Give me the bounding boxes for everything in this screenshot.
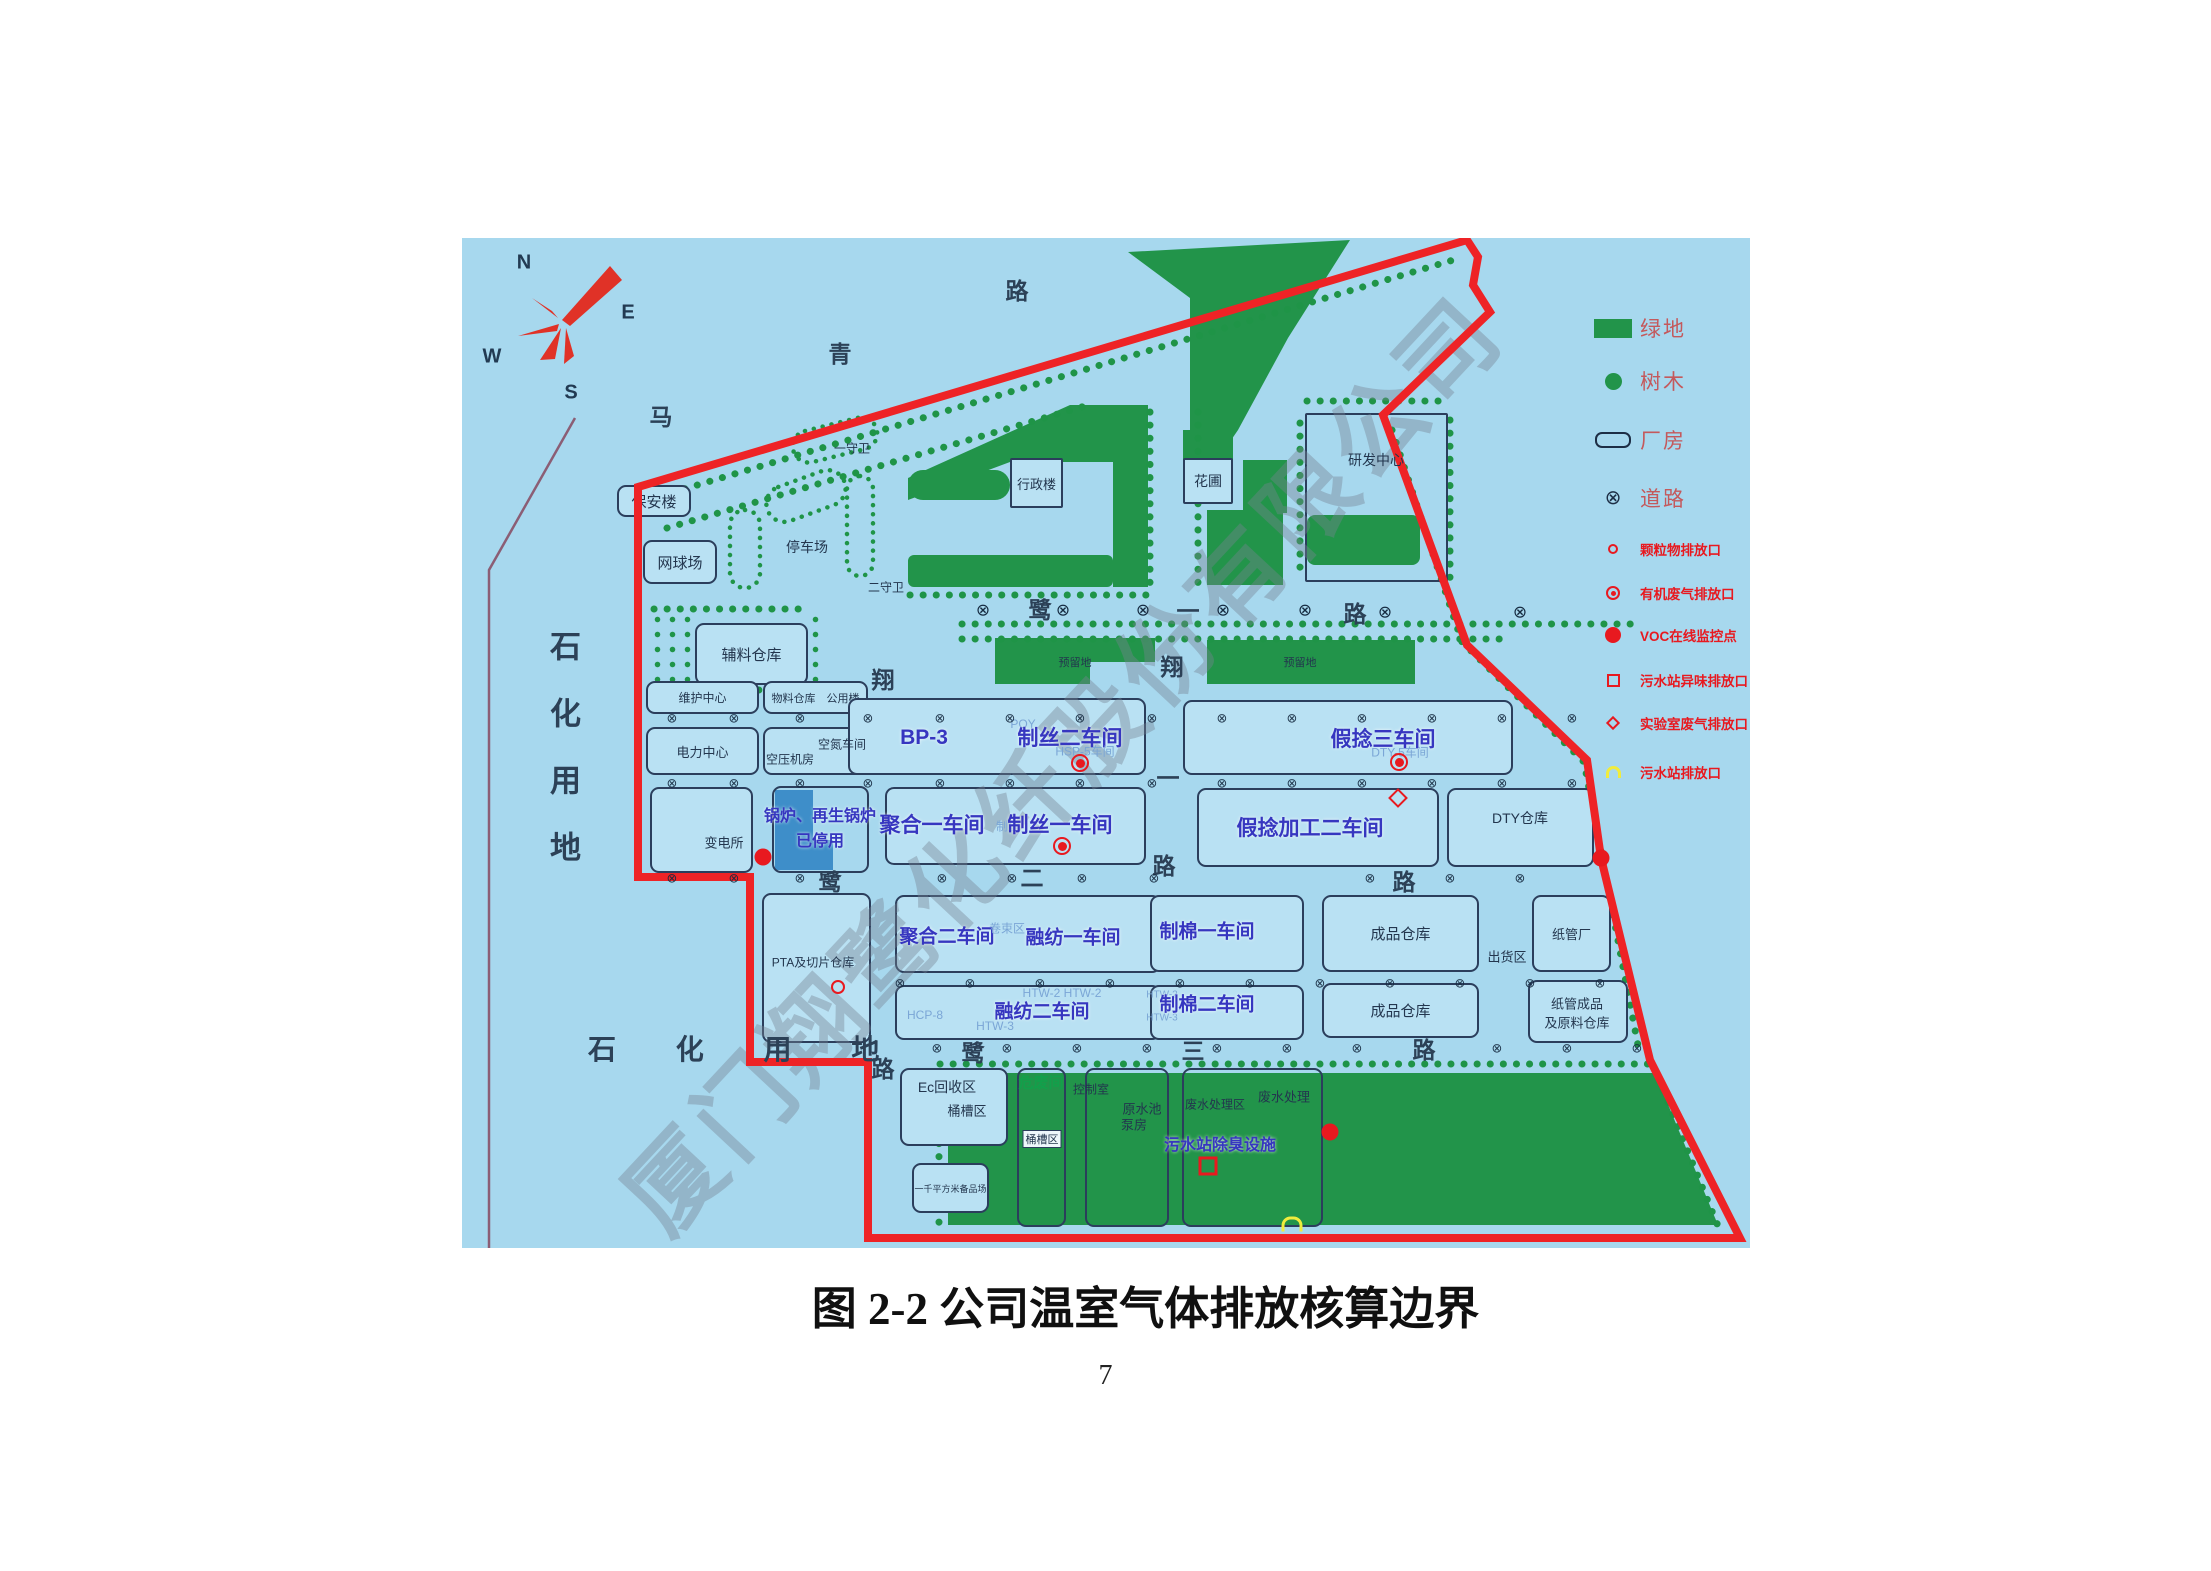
road-name-char: 一 [1157,759,1180,793]
road-node-icon: ⊗ [937,872,948,885]
road-node-icon: ⊗ [795,712,806,725]
road-name-char: 鹭 [1029,591,1052,625]
label-air-compressor: 空压机房 [766,751,814,768]
road-name-char: 翔 [1161,648,1184,682]
compass-rose-icon [518,266,622,364]
road-node-icon: ⊗ [1147,777,1158,790]
road-node-icon: ⊗ [863,712,874,725]
legend-item-green-area: 绿地 [1590,313,1750,343]
legend-item-sewage-outlet: 污水站排放口 [1590,757,1750,787]
label-bundle-area: 卷束区 [989,920,1025,937]
label-pta: PTA及切片仓库 [772,954,854,971]
site-map: 保安楼 网球场 辅料仓库 维护中心 物料仓库 公用楼 电力中心 成品仓库 纸管厂… [462,238,1750,1248]
road-node-icon: ⊗ [1315,977,1326,990]
road-crossing-icon: ⊗ [1378,604,1392,621]
road-node-icon: ⊗ [1357,712,1368,725]
legend-item-trees: 树木 [1590,366,1750,396]
label-hazwaste-room: 危废间 [1018,1072,1063,1093]
road-name-char: 一 [1177,592,1200,626]
organic-gas-outlet-icon [1071,754,1089,772]
road-node-icon: ⊗ [729,777,740,790]
figure-caption: 图 2-2 公司温室气体排放核算边界 [40,1272,2211,1337]
road-crossing-icon: ⊗ [1513,604,1527,621]
pm-outlet-icon [1608,544,1618,554]
label-pump-house: 泵房 [1121,1115,1147,1134]
label-deodorization: 污水站除臭设施 [1164,1131,1276,1155]
road-crossing-icon: ⊗ [1056,602,1070,619]
road-name-char: 路 [1393,863,1416,897]
road-name-char: 路 [1344,595,1367,629]
road-node-icon: ⊗ [1077,872,1088,885]
document-page: 保安楼 网球场 辅料仓库 维护中心 物料仓库 公用楼 电力中心 成品仓库 纸管厂… [0,0,2211,1571]
label-paper-tube-2: 及原料仓库 [1544,1013,1609,1032]
tree-dot-grid [650,612,694,688]
road-node-icon: ⊗ [1005,777,1016,790]
compass-s: S [564,382,577,405]
page-number: 7 [0,1360,2211,1392]
road-name-char: 青 [829,335,852,369]
road-node-icon: ⊗ [1515,872,1526,885]
road-name-char: 马 [650,398,673,432]
building-power-center: 电力中心 [646,727,759,775]
label-wastewater: 废水处理 [1258,1087,1310,1106]
road-node-icon: ⊗ [1217,712,1228,725]
road-node-icon: ⊗ [1287,777,1298,790]
road-node-icon: ⊗ [1075,712,1086,725]
sewage-odor-outlet-icon [1607,674,1620,687]
road-node-icon: ⊗ [895,977,906,990]
building-maintenance-center: 维护中心 [646,681,759,714]
green-area-swatch [1594,319,1632,338]
road-node-icon: ⊗ [935,712,946,725]
road-node-icon: ⊗ [863,777,874,790]
road-node-icon: ⊗ [667,712,678,725]
road-node-icon: ⊗ [1212,1042,1223,1055]
label-control-room: 控制室 [1073,1081,1109,1098]
petrochemical-land-label-horizontal: 石 化 用 地 [588,1028,905,1068]
legend-item-voc: VOC在线监控点 [1590,620,1750,650]
label-stopped-boiler-2: 已停用 [796,827,844,851]
road-node-icon: ⊗ [1072,1042,1083,1055]
label-hcp8: HCP-8 [907,1008,943,1022]
road-name-char: 二 [1021,859,1044,893]
building-finished-warehouse2: 成品仓库 [1322,983,1479,1038]
road-node-icon: ⊗ [965,977,976,990]
road-node-icon: ⊗ [1595,977,1606,990]
road-name-char: 路 [872,1050,895,1084]
label-meltspin1: 融纺一车间 [1025,923,1120,950]
label-reserved-land1: 预留地 [1059,654,1092,670]
compass-w: W [483,346,502,369]
label-wastewater-area: 废水处理区 [1185,1096,1245,1113]
label-meltspin2: 融纺二车间 [994,997,1089,1024]
road-node-icon: ⊗ [1567,777,1578,790]
road-node-icon: ⊗ [1455,977,1466,990]
road-name-char: 路 [1006,272,1029,306]
road-node-icon: ⊗ [1427,777,1438,790]
road-crossing-icon: ⊗ [1298,602,1312,619]
road-name-char: 鹭 [962,1034,985,1068]
road-node-icon: ⊗ [935,777,946,790]
road-crossing-icon: ⊗ [1216,602,1230,619]
building-tennis-court: 网球场 [643,540,717,584]
building-paper-tube-plant: 纸管厂 [1532,895,1611,972]
label-ec-recycle: Ec回收区 [918,1077,976,1097]
sewage-odor-outlet-icon [1199,1157,1218,1176]
organic-gas-outlet-icon [1606,586,1620,600]
road-node-icon: ⊗ [729,712,740,725]
legend-item-pm-outlet: 颗粒物排放口 [1590,534,1750,564]
voc-monitor-icon [1322,1124,1339,1141]
road-node-icon: ⊗ [1245,977,1256,990]
building-finished-warehouse1: 成品仓库 [1322,895,1479,972]
road-node-icon: ⊗ [1365,872,1376,885]
building-spare-parts-yard: 一千平方米备品场 [912,1163,989,1213]
label-staple1: 制棉一车间 [1159,917,1254,944]
road-node-icon: ⊗ [1287,712,1298,725]
road-node-icon: ⊗ [1632,1042,1643,1055]
road-node-icon: ⊗ [1142,1042,1153,1055]
road-node-icon: ⊗ [1007,872,1018,885]
building-substation [650,787,753,873]
legend-item-lab-gas: 实验室废气排放口 [1590,708,1750,738]
factory-building-icon [1595,432,1631,448]
road-node-icon: ⊗ [1357,777,1368,790]
road-node-icon: ⊗ [1427,712,1438,725]
voc-monitor-icon [755,849,772,866]
road-node-icon: ⊗ [1105,977,1116,990]
road-node-icon: ⊗ [795,872,806,885]
label-rnd-center: 研发中心 [1348,450,1404,470]
voc-monitor-icon [1605,627,1621,643]
label-shipping-area: 出货区 [1487,947,1526,966]
organic-gas-outlet-icon [1390,753,1408,771]
sewage-outlet-icon [1282,1217,1303,1232]
label-air-separation: 空氮车间 [818,736,866,753]
road-name-char: 鹭 [819,863,842,897]
label-guard1: 一守卫 [834,440,870,457]
tree-dot-grid [808,612,824,688]
road-name-char: 翔 [872,661,895,695]
sewage-outlet-icon [1606,766,1621,778]
building-aux-warehouse: 辅料仓库 [695,623,808,685]
legend-item-factory: 厂房 [1590,425,1750,455]
road-node-icon: ⊗ [932,1042,943,1055]
road-node-icon: ⊗ [1567,712,1578,725]
label-staple2: 制棉二车间 [1159,990,1254,1017]
label-reserved-land2: 预留地 [1284,654,1317,670]
building-security: 保安楼 [617,485,691,517]
road-node-icon: ⊗ [1525,977,1536,990]
road-node-icon: ⊗ [1385,977,1396,990]
road-node-icon: ⊗ [1497,712,1508,725]
label-bp3: BP-3 [900,726,948,750]
road-node-icon: ⊗ [1005,712,1016,725]
label-spinning1: 制丝一车间 [1008,809,1113,839]
legend-item-sewage-odor: 污水站异味排放口 [1590,665,1750,695]
road-node-icon: ⊗ [1147,712,1158,725]
road-crossing-icon: ⊗ [976,602,990,619]
road-node-icon: ⊗ [1445,872,1456,885]
label-dty-warehouse: DTY仓库 [1492,808,1548,828]
label-tank-area1: 桶槽区 [947,1101,986,1120]
road-name-char: 路 [1413,1031,1436,1065]
label-texturing-proc2: 假捻加工二车间 [1237,812,1384,842]
label-poly2: 聚合二车间 [899,922,994,949]
building-admin: 行政楼 [1010,458,1063,508]
label-stopped-boiler-1: 锅炉、再生锅炉 [764,802,876,826]
road-node-icon: ⊗ [1352,1042,1363,1055]
road-name-char: 三 [1182,1032,1205,1066]
road-node-icon: ⊗ [1282,1042,1293,1055]
road-node-icon: ⊗ [1562,1042,1573,1055]
petrochemical-land-label-vertical: 石化用地 [540,630,585,898]
road-node-icon: ⊗ [1035,977,1046,990]
road-node-icon: ⊗ [1075,777,1086,790]
compass-n: N [517,252,531,275]
lab-gas-outlet-icon [1606,716,1620,730]
road-node-icon: ⊗ [667,872,678,885]
label-substation: 变电所 [704,833,743,852]
road-crossing-icon: ⊗ [1136,602,1150,619]
compass-e: E [621,302,634,325]
pm-outlet-icon [831,980,845,994]
voc-monitor-icon [1593,850,1610,867]
label-parking: 停车场 [786,537,828,557]
label-poly1: 聚合一车间 [880,809,985,839]
legend-item-organic-gas: 有机废气排放口 [1590,578,1750,608]
road-node-icon: ⊗ [729,872,740,885]
road-node-icon: ⊗ [1497,777,1508,790]
label-paper-tube-1: 纸管成品 [1551,994,1603,1013]
road-node-icon: ⊗ [1002,1042,1013,1055]
road-node-icon: ⊗ [1217,777,1228,790]
road-node-icon: ⊗ [1492,1042,1503,1055]
road-node-icon: ⊗ [795,777,806,790]
road-icon: ⊗ [1605,488,1622,508]
road-node-icon: ⊗ [667,777,678,790]
label-tank-area2: 桶槽区 [1023,1130,1062,1148]
tree-icon [1605,373,1622,390]
label-guard2: 二守卫 [868,579,904,596]
organic-gas-outlet-icon [1053,837,1071,855]
legend-item-road: ⊗ 道路 [1590,483,1750,513]
road-node-icon: ⊗ [1149,872,1160,885]
road-node-icon: ⊗ [1175,977,1186,990]
